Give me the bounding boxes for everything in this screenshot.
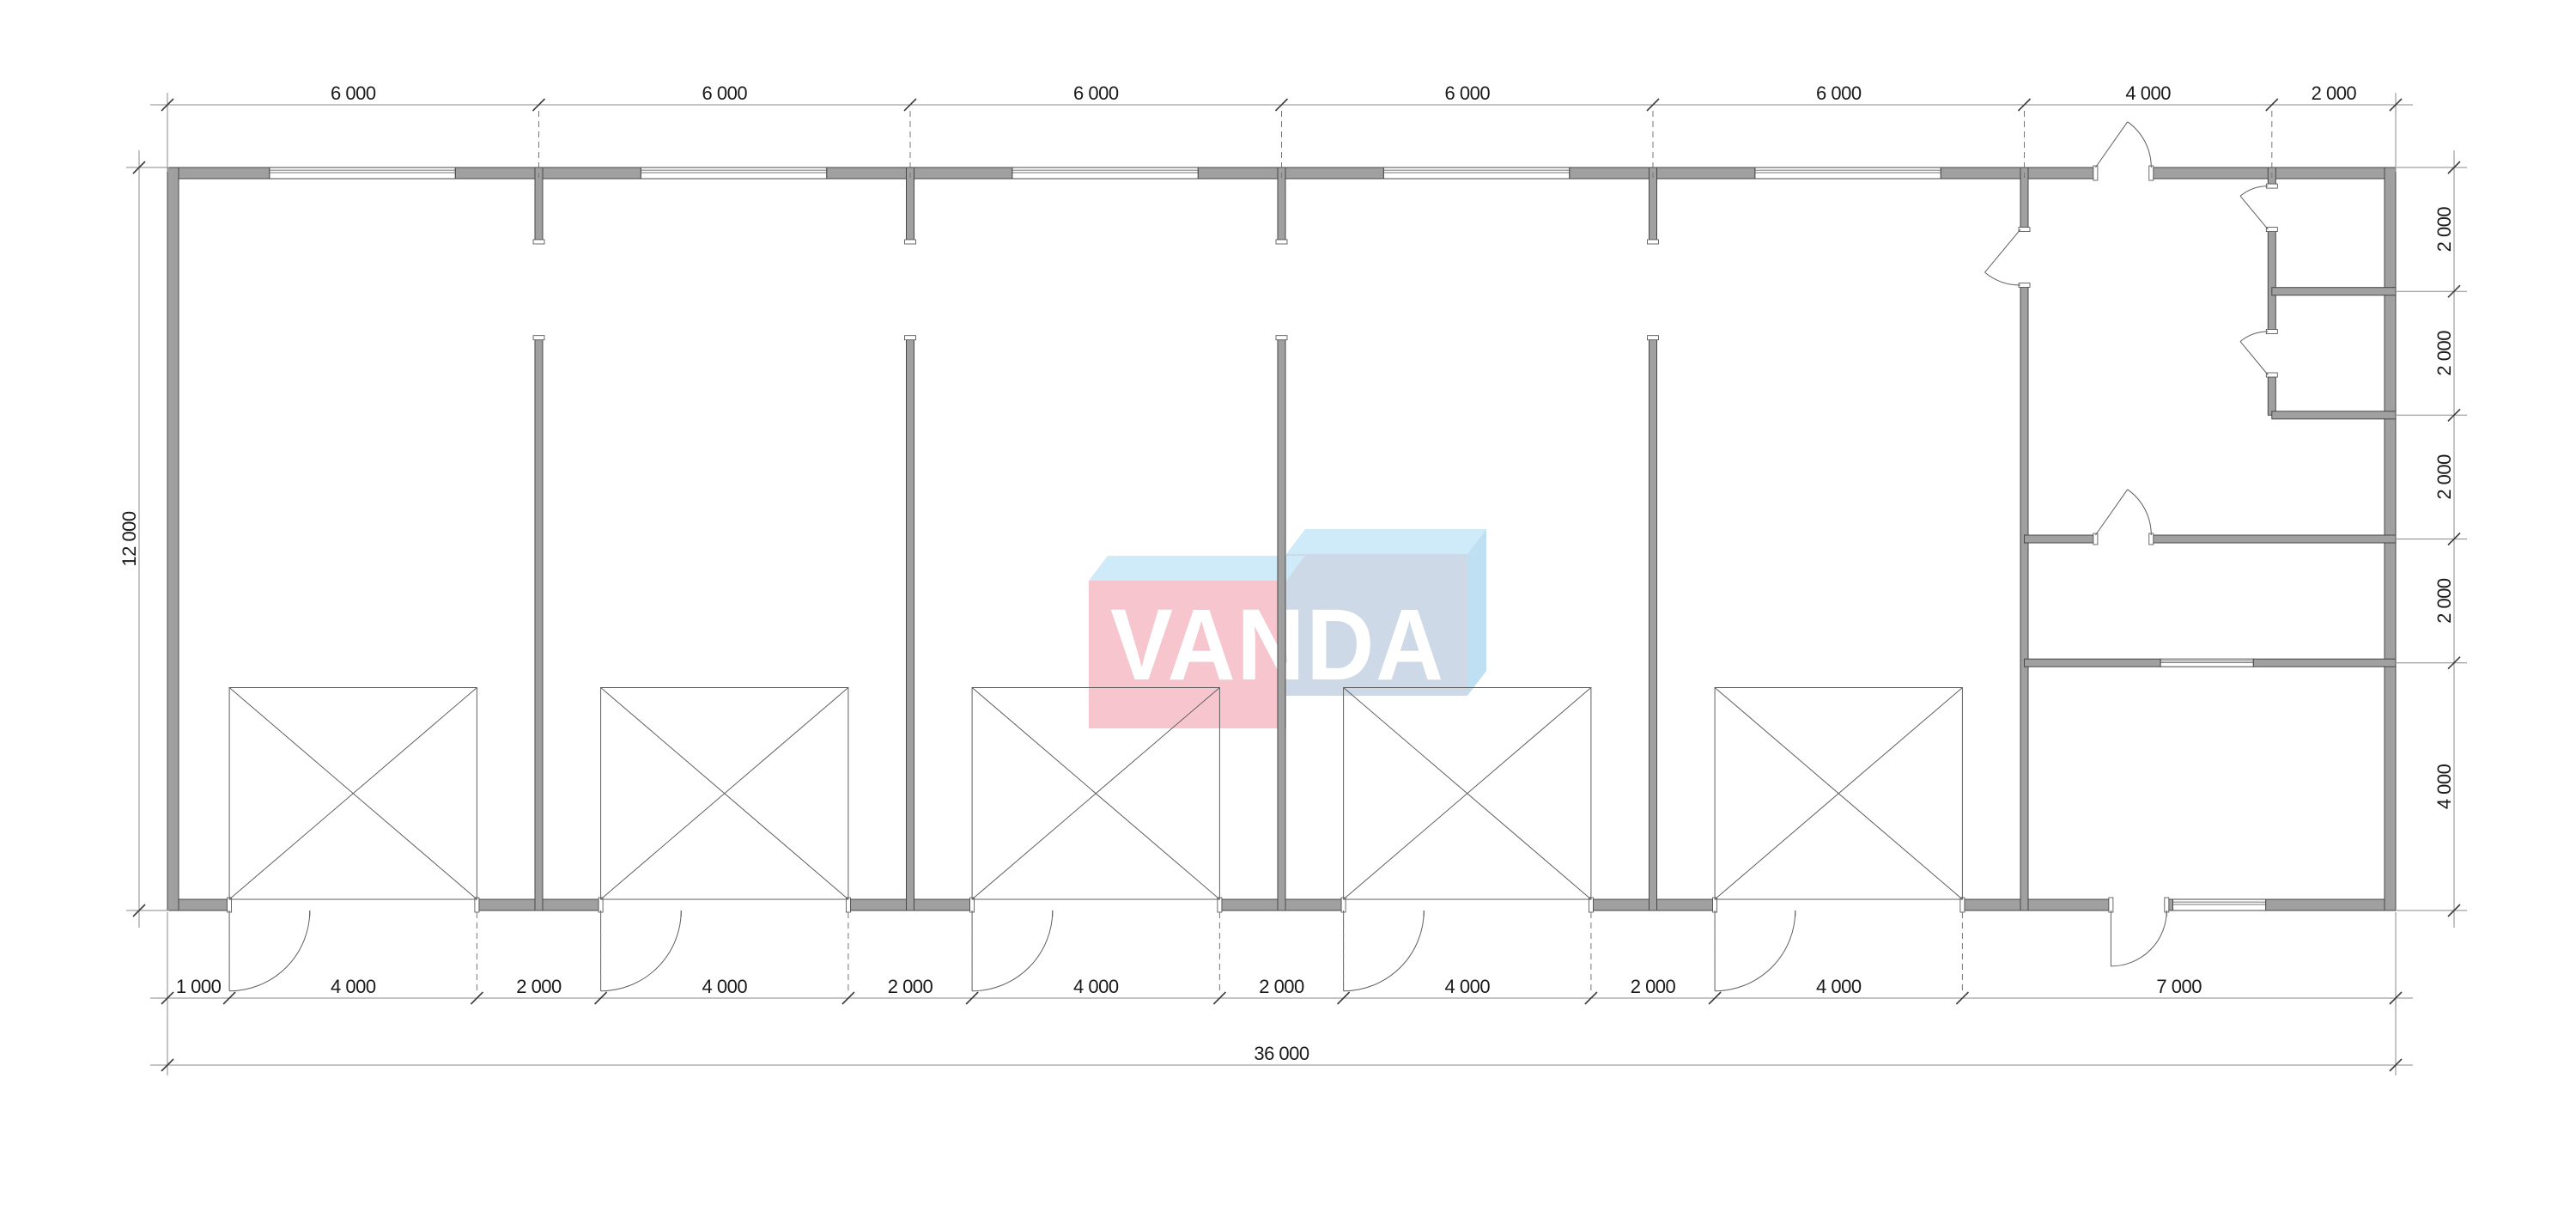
- dim-label-bottom-9: 4 000: [1816, 976, 1862, 997]
- dim-label-top-3: 6 000: [1445, 82, 1491, 104]
- opening-jamb: [1960, 898, 1965, 912]
- door-leaf: [2095, 490, 2127, 535]
- opening-jamb: [2109, 898, 2113, 912]
- wall-bay-partition-2: [907, 338, 914, 910]
- dim-label-top-1: 6 000: [702, 82, 748, 104]
- wall-bay-partition-1: [535, 167, 543, 242]
- opening-jamb: [970, 898, 975, 912]
- dim-label-bottom-3: 4 000: [702, 976, 748, 997]
- door-swing: [1715, 910, 1795, 991]
- wall-exterior-top: [167, 167, 270, 179]
- window: [641, 167, 826, 179]
- dim-label-bottom-2: 2 000: [516, 976, 562, 997]
- door-swing: [2240, 186, 2268, 197]
- wall-bay-partition-3: [1278, 338, 1285, 910]
- door-swing: [2240, 332, 2268, 342]
- window: [1383, 167, 1569, 179]
- opening-jamb: [533, 240, 544, 244]
- opening-jamb: [2093, 166, 2098, 180]
- door-swing: [1985, 272, 2021, 285]
- dim-label-right-0: 2 000: [2433, 207, 2455, 253]
- door-swing: [2111, 910, 2166, 966]
- window: [270, 167, 455, 179]
- wall-hall-wall-6000: [2025, 535, 2096, 543]
- wall-bay-partition-4: [1649, 167, 1657, 242]
- dim-label-bottom-4: 2 000: [888, 976, 933, 997]
- dim-label-overall-0: 36 000: [1254, 1043, 1309, 1064]
- door-leaf: [1985, 229, 2021, 272]
- wall-exterior-top: [455, 167, 641, 179]
- dim-label-left-0: 12 000: [118, 511, 140, 567]
- wall-room-wall-8000: [2025, 659, 2161, 667]
- opening-jamb: [1648, 336, 1659, 340]
- opening-jamb: [2165, 898, 2169, 912]
- door-leaf: [2240, 342, 2268, 375]
- window: [1012, 167, 1198, 179]
- opening-jamb: [905, 336, 916, 340]
- door-leaf: [2240, 196, 2268, 229]
- opening-jamb: [1341, 898, 1346, 912]
- opening-jamb: [475, 898, 479, 912]
- opening-jamb: [228, 898, 232, 912]
- opening-jamb: [1276, 336, 1287, 340]
- dim-label-bottom-6: 2 000: [1259, 976, 1304, 997]
- wall-hall-partition: [2020, 285, 2028, 910]
- wall-bay-partition-4: [1649, 338, 1657, 910]
- dim-label-bottom-8: 2 000: [1631, 976, 1676, 997]
- door-leaf: [2095, 122, 2127, 167]
- wall-exterior-bottom: [1962, 899, 2111, 910]
- dim-label-bottom-10: 7 000: [2156, 976, 2202, 997]
- dim-label-right-4: 4 000: [2433, 764, 2455, 809]
- opening-jamb: [1648, 240, 1659, 244]
- wall-exterior-top: [1570, 167, 1755, 179]
- opening-jamb: [1713, 898, 1717, 912]
- dim-label-bottom-7: 4 000: [1445, 976, 1491, 997]
- wall-room-wall-8000: [2253, 659, 2396, 667]
- opening-jamb: [1276, 240, 1287, 244]
- wall-exterior-left: [167, 167, 179, 910]
- wall-hall-wall-6000: [2151, 535, 2396, 543]
- opening-jamb: [905, 240, 916, 244]
- door-swing: [601, 910, 682, 991]
- wall-exterior-top: [1198, 167, 1383, 179]
- opening-jamb: [1218, 898, 1222, 912]
- dim-label-right-3: 2 000: [2433, 578, 2455, 624]
- door-swing: [972, 910, 1053, 991]
- window: [2173, 899, 2266, 910]
- wall-room-divider-2000: [2272, 288, 2396, 295]
- wall-exterior-top: [1941, 167, 2095, 179]
- dim-label-bottom-5: 4 000: [1073, 976, 1119, 997]
- opening-jamb: [598, 898, 603, 912]
- wall-exterior-bottom: [2266, 899, 2396, 910]
- opening-jamb: [533, 336, 544, 340]
- wall-bay-partition-1: [535, 338, 543, 910]
- door-swing: [2128, 122, 2152, 167]
- wall-bay-partition-2: [907, 167, 914, 242]
- opening-jamb: [846, 898, 850, 912]
- dim-label-top-5: 4 000: [2125, 82, 2171, 104]
- dim-label-bottom-0: 1 000: [176, 976, 222, 997]
- dim-label-top-0: 6 000: [331, 82, 376, 104]
- opening-jamb: [1589, 898, 1593, 912]
- window: [1755, 167, 1941, 179]
- door-swing: [229, 910, 310, 991]
- dim-label-bottom-1: 4 000: [331, 976, 376, 997]
- wall-bay-partition-3: [1278, 167, 1285, 242]
- wall-rooms-wall: [2268, 375, 2275, 416]
- wall-exterior-top: [827, 167, 1012, 179]
- floor-plan-drawing: 6 0006 0006 0006 0006 0004 0002 0001 000…: [0, 0, 2576, 1224]
- wall-rooms-wall: [2268, 229, 2275, 332]
- door-swing: [2128, 490, 2152, 535]
- door-swing: [1344, 910, 1425, 991]
- dim-label-right-2: 2 000: [2433, 454, 2455, 500]
- wall-room-divider-4000: [2272, 411, 2396, 419]
- dim-label-top-4: 6 000: [1816, 82, 1862, 104]
- dim-label-top-2: 6 000: [1073, 82, 1119, 104]
- dim-label-top-6: 2 000: [2312, 82, 2357, 104]
- floor-plan-canvas: VANDA 6 0006 0006 0006 0006 0004 0002 00…: [0, 0, 2576, 1224]
- opening-jamb: [2149, 166, 2154, 180]
- dim-label-right-1: 2 000: [2433, 331, 2455, 376]
